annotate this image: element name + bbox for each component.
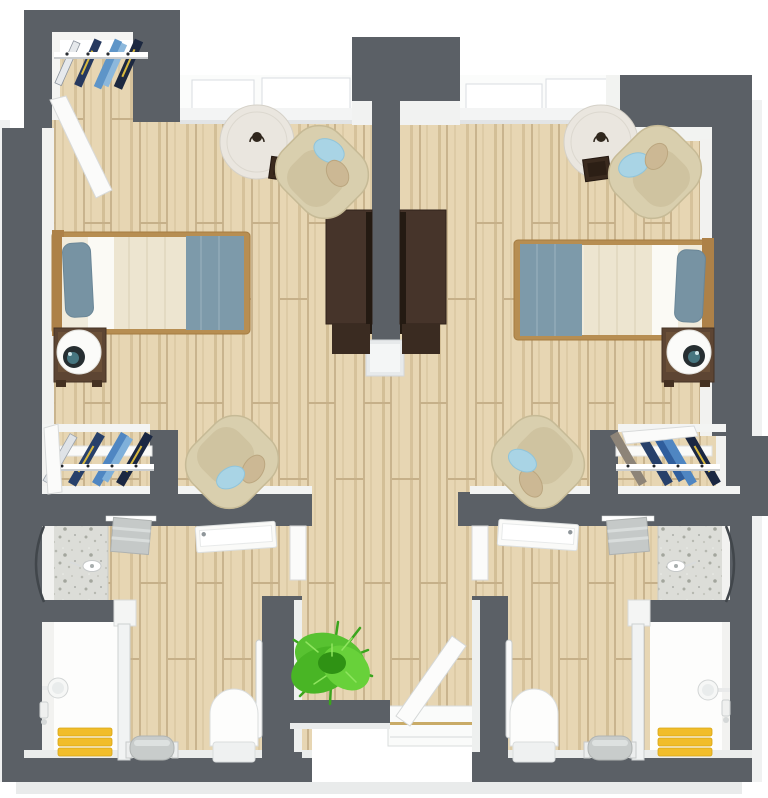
window-left-frame-a	[192, 80, 254, 110]
right-wall-inner-lower	[722, 516, 730, 762]
table-lamp-right	[596, 132, 606, 142]
closet-topleft-hook-1	[65, 52, 68, 55]
shower-head-right-face	[702, 684, 714, 696]
closet-mid-left-hook-3	[111, 465, 114, 468]
bed-left-blanket-fold-2	[146, 237, 148, 329]
closet-top-wall	[24, 10, 180, 32]
bench-right-slat-1	[658, 728, 712, 736]
bed-right-foot-fold-2	[554, 244, 556, 336]
wetroom-right-glass-door	[632, 624, 644, 760]
screenshot-root	[0, 0, 768, 798]
t-wall-stem	[372, 101, 400, 343]
wetroom-right-top-wall	[648, 600, 740, 622]
closet-mid-right-rail-shadow	[616, 469, 720, 471]
under-shelf-right-inner	[587, 161, 607, 177]
shower-drain-left-dot	[90, 564, 94, 568]
bed-right-blanket-fold-3	[634, 245, 636, 335]
table-lamp-left	[252, 132, 262, 142]
nightstand-left-leg-a	[56, 380, 66, 387]
wetroom-left-door-pillar	[114, 600, 136, 626]
bed-right-blanket	[584, 245, 654, 335]
bed-right-pillow	[674, 249, 706, 322]
bed-right	[514, 238, 714, 342]
wardrobe-left-base	[332, 324, 370, 354]
floor-towel-left-roll	[130, 736, 174, 760]
towel-mid-right	[607, 517, 650, 554]
wetroom-right-door-pillar	[628, 600, 650, 626]
window-left-frame-b	[262, 78, 350, 112]
window-right-frame-a	[466, 84, 542, 112]
shower-drain-right-dot	[674, 564, 678, 568]
nightstand-right-leg-a	[664, 380, 674, 387]
nightstand-right-leg-b	[700, 380, 710, 387]
bottom-wall-left	[24, 756, 312, 782]
closet-topleft-rail-shadow	[54, 57, 148, 59]
shower-head-left-face	[52, 682, 64, 694]
closet-mid-left-rail	[54, 464, 154, 469]
bed-left-blanket-fold-1	[128, 237, 130, 329]
bench-right-slat-2	[658, 738, 712, 746]
bed-right-sheet-band	[652, 245, 678, 335]
toilet-left-base	[213, 742, 255, 762]
wardrobe-right	[400, 210, 446, 324]
shower-valve-right	[722, 700, 730, 716]
floor-towel-right-highlight	[592, 740, 628, 746]
bed-right-blanket-fold-1	[598, 245, 600, 335]
nightstand-left	[54, 328, 106, 387]
entry-recess-left	[312, 726, 390, 782]
bath-door-right-open	[472, 526, 488, 580]
closet-mid-left-hook-4	[135, 465, 138, 468]
toilet-right-bowl	[510, 689, 558, 746]
stem-cap-top	[370, 344, 400, 372]
bed-left-foot-fold-2	[218, 236, 220, 330]
closet-mid-right-hook-4	[701, 465, 704, 468]
entry-threshold-strip	[390, 722, 482, 725]
bed-right-foot-fold-1	[536, 244, 538, 336]
closet-mid-left-rail-shadow	[54, 469, 154, 471]
closet-topleft-hook-3	[106, 52, 109, 55]
mid-wall-left	[28, 492, 312, 526]
floor-towel-right-roll	[588, 736, 632, 760]
closet-mid-right-hook-1	[627, 465, 630, 468]
bed-left-blanket	[114, 237, 190, 329]
floor-plan	[0, 0, 768, 798]
right-outer-wall-upper	[712, 139, 752, 436]
entry-recess-below	[390, 744, 484, 782]
bed-left	[52, 230, 250, 336]
bench-left-slat-2	[58, 738, 112, 746]
lamp-left-glint	[68, 352, 72, 356]
closet-topleft-hook-2	[86, 52, 89, 55]
wardrobe-left-shadow	[366, 212, 372, 334]
closet-stub-left	[150, 430, 178, 494]
bed-left-foot-blanket	[186, 236, 244, 330]
entry-wall-bottom-face	[290, 723, 390, 729]
towel-rack-mid-left	[106, 516, 156, 555]
wardrobe-right-shadow	[400, 212, 406, 334]
toilet-right-base	[513, 742, 555, 762]
entry-threshold-line	[390, 736, 482, 738]
closet-mid-right-rail	[616, 464, 720, 469]
t-wall-sill	[352, 101, 460, 125]
left-outer-wall	[2, 128, 42, 782]
floor-towel-left-highlight	[134, 740, 170, 746]
closet-mid-right-hook-2	[653, 465, 656, 468]
shower-knob-left	[41, 719, 47, 725]
nightstand-left-leg-b	[92, 380, 102, 387]
towel-mid-left	[111, 517, 152, 554]
wetroom-left-glass-door	[118, 624, 130, 760]
bench-left-slat-1	[58, 728, 112, 736]
t-wall-bar	[352, 37, 460, 101]
entry-wall	[290, 700, 390, 727]
shower-valve-left	[40, 702, 48, 718]
wardrobe-right-base	[402, 324, 440, 354]
bed-left-foot-fold-1	[200, 236, 202, 330]
wardrobe-left	[326, 210, 372, 324]
floor-towel-right	[584, 736, 636, 760]
bath-wall-right-face	[472, 600, 480, 752]
closet-mid-left-hook-2	[87, 465, 90, 468]
closet-inner-top-face	[52, 32, 133, 40]
nightstand-right	[662, 328, 714, 387]
bath-door-left-open	[290, 526, 306, 580]
bed-left-pillow	[62, 242, 94, 317]
closet-mid-right-hook-3	[677, 465, 680, 468]
bed-left-blanket-fold-3	[164, 237, 166, 329]
towel-rack-mid-right	[602, 516, 654, 555]
closet-topleft-hook-4	[126, 52, 129, 55]
bed-right-blanket-fold-2	[616, 245, 618, 335]
toilet-left-bowl	[210, 689, 258, 746]
shower-knob-right	[723, 717, 729, 723]
vanity-right	[497, 519, 579, 551]
bed-right-foot-blanket	[520, 244, 582, 336]
bench-left-slat-3	[58, 748, 112, 756]
vanity-left	[195, 521, 277, 553]
floor-towel-left	[126, 736, 178, 760]
lamp-right-glint	[695, 351, 699, 355]
wetroom-left-top-wall	[28, 600, 120, 622]
bench-right-slat-3	[658, 748, 712, 756]
